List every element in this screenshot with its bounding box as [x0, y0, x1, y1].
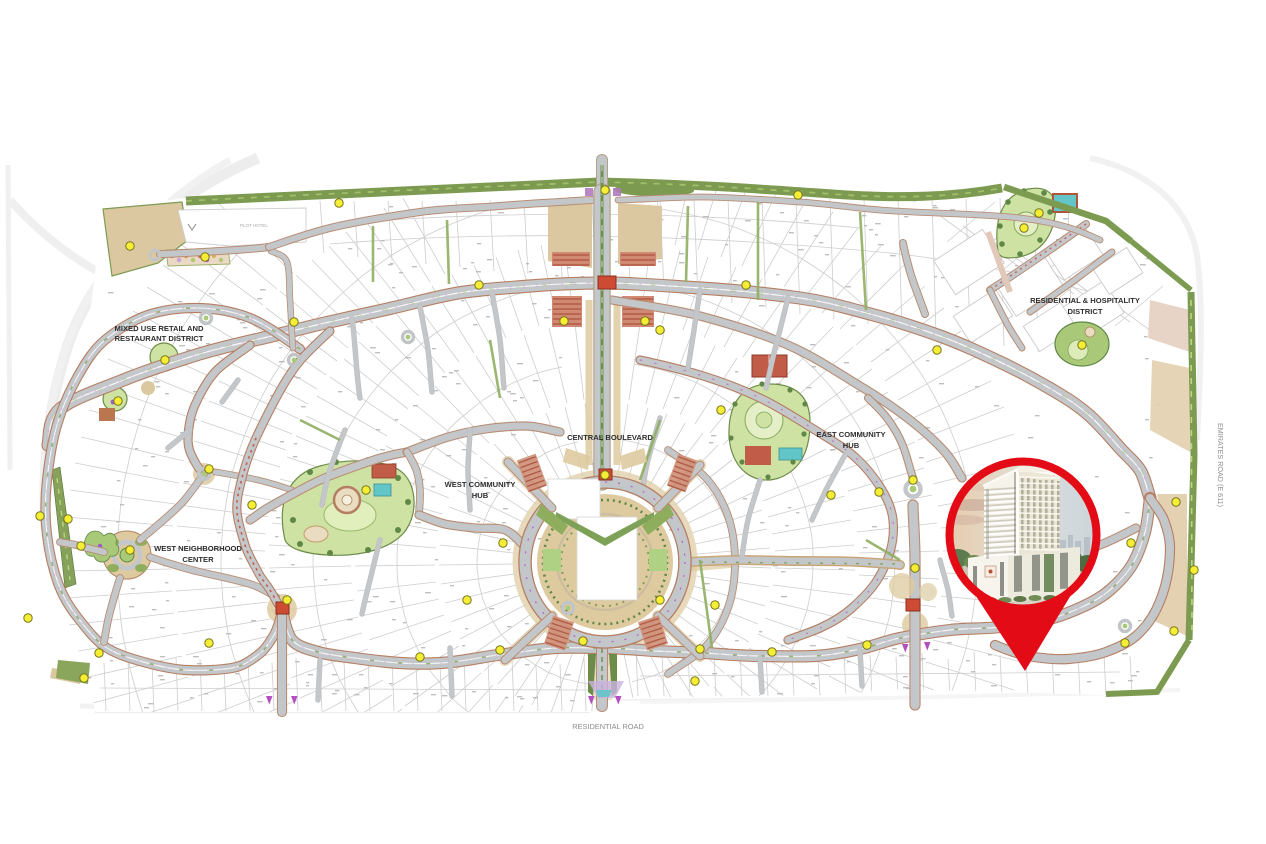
svg-text:HUB: HUB	[472, 491, 489, 500]
svg-text:MIXED USE RETAIL AND: MIXED USE RETAIL AND	[115, 324, 204, 333]
svg-text:PLOT HOTEL: PLOT HOTEL	[240, 223, 268, 228]
svg-text:CENTRAL BOULEVARD: CENTRAL BOULEVARD	[567, 433, 653, 442]
svg-text:EMIRATES ROAD (E 611): EMIRATES ROAD (E 611)	[1216, 423, 1225, 507]
svg-text:DISTRICT: DISTRICT	[1067, 307, 1102, 316]
svg-text:WEST NEIGHBORHOOD: WEST NEIGHBORHOOD	[154, 544, 242, 553]
svg-text:RESIDENTIAL ROAD: RESIDENTIAL ROAD	[572, 722, 644, 731]
svg-text:HUB: HUB	[843, 441, 860, 450]
svg-text:CENTER: CENTER	[182, 555, 214, 564]
svg-text:EAST COMMUNITY: EAST COMMUNITY	[816, 430, 885, 439]
svg-text:WEST COMMUNITY: WEST COMMUNITY	[445, 480, 516, 489]
svg-text:RESTAURANT DISTRICT: RESTAURANT DISTRICT	[115, 334, 204, 343]
svg-text:RESIDENTIAL & HOSPITALITY: RESIDENTIAL & HOSPITALITY	[1030, 296, 1140, 305]
